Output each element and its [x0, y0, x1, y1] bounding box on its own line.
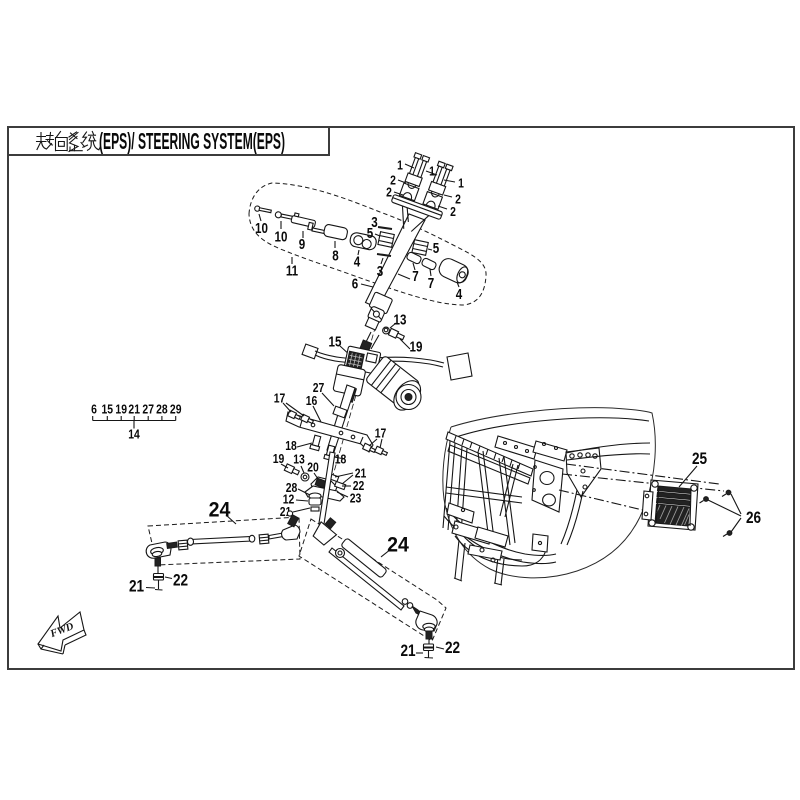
- svg-text:19: 19: [115, 402, 127, 416]
- svg-text:2: 2: [455, 192, 461, 206]
- svg-text:6: 6: [352, 275, 358, 292]
- svg-text:22: 22: [445, 639, 460, 658]
- svg-text:1: 1: [429, 164, 435, 178]
- svg-text:21: 21: [129, 577, 145, 596]
- svg-text:18: 18: [285, 439, 297, 453]
- svg-text:5: 5: [433, 240, 439, 257]
- svg-text:1: 1: [397, 158, 403, 172]
- svg-text:9: 9: [299, 236, 305, 253]
- svg-text:4: 4: [354, 253, 361, 270]
- svg-text:1: 1: [458, 176, 464, 190]
- svg-text:13: 13: [394, 311, 407, 328]
- svg-text:22: 22: [173, 571, 188, 590]
- svg-text:3: 3: [377, 263, 383, 280]
- svg-text:3: 3: [371, 214, 377, 231]
- svg-text:7: 7: [412, 268, 418, 285]
- svg-text:15: 15: [329, 333, 342, 350]
- svg-text:19: 19: [273, 452, 285, 466]
- svg-text:19: 19: [410, 338, 423, 355]
- svg-text:8: 8: [332, 247, 338, 264]
- svg-text:10: 10: [255, 220, 268, 237]
- svg-text:18: 18: [335, 452, 347, 466]
- svg-text:25: 25: [692, 450, 708, 469]
- svg-text:24: 24: [387, 534, 409, 557]
- svg-text:16: 16: [306, 394, 318, 408]
- svg-text:13: 13: [293, 452, 305, 466]
- svg-text:4: 4: [456, 286, 463, 303]
- svg-text:29: 29: [170, 402, 182, 416]
- svg-text:20: 20: [307, 460, 319, 474]
- svg-text:26: 26: [746, 509, 761, 528]
- svg-text:24: 24: [209, 499, 231, 522]
- svg-text:21: 21: [400, 642, 416, 661]
- svg-text:23: 23: [350, 491, 362, 505]
- svg-text:11: 11: [286, 262, 298, 279]
- svg-text:17: 17: [375, 426, 387, 440]
- svg-text:2: 2: [386, 185, 392, 199]
- svg-text:28: 28: [156, 402, 168, 416]
- svg-text:14: 14: [128, 427, 140, 441]
- svg-text:27: 27: [142, 402, 154, 416]
- svg-text:6: 6: [91, 402, 97, 416]
- svg-text:10: 10: [275, 228, 288, 245]
- svg-text:17: 17: [274, 391, 286, 405]
- svg-text:(EPS)/ STEERING SYSTEM(EPS): (EPS)/ STEERING SYSTEM(EPS): [99, 128, 285, 154]
- svg-text:2: 2: [450, 205, 456, 219]
- svg-text:21: 21: [128, 402, 140, 416]
- svg-text:7: 7: [428, 275, 434, 292]
- svg-text:15: 15: [102, 402, 114, 416]
